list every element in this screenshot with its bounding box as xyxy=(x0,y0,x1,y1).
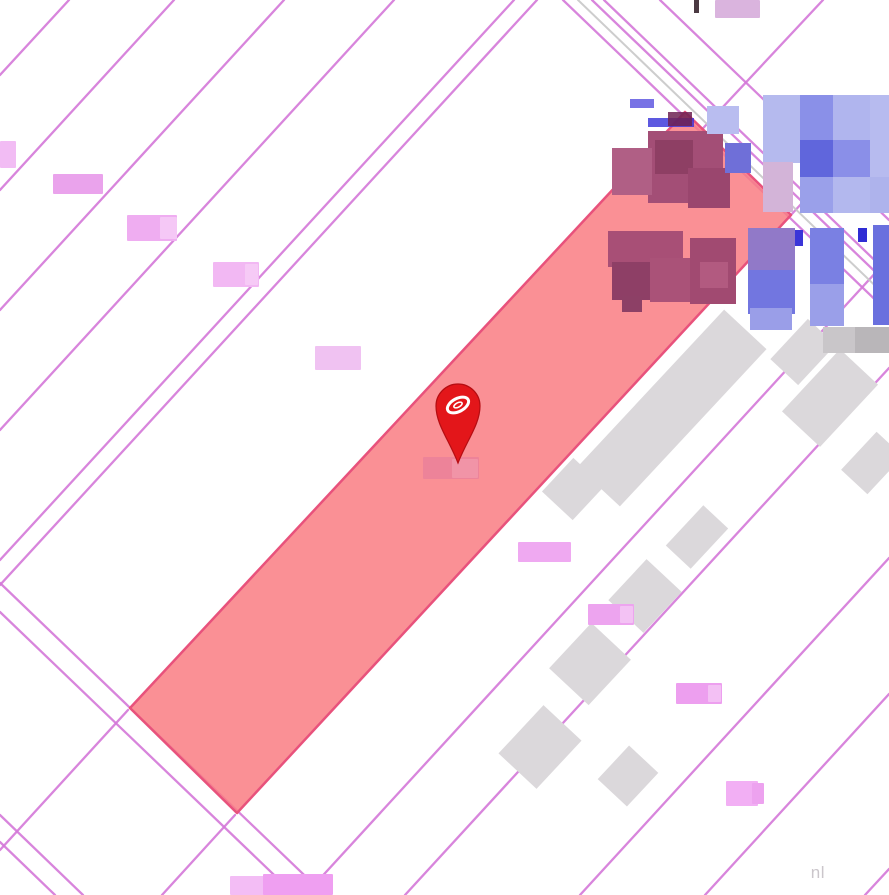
blurred-parcel-label xyxy=(518,542,571,562)
map-attribution: nl xyxy=(811,863,825,883)
pixelated-building-block xyxy=(823,327,857,353)
pixelated-building-block xyxy=(694,0,699,13)
blurred-parcel-label xyxy=(263,874,333,895)
pixelated-building-block xyxy=(810,284,844,326)
parcel-boundary-line xyxy=(0,842,55,895)
map-svg xyxy=(0,0,889,895)
pixelated-building-block xyxy=(833,95,871,141)
building-footprint xyxy=(549,623,631,705)
pixelated-building-block xyxy=(668,112,692,126)
pixelated-building-block xyxy=(795,230,803,246)
pixelated-building-block xyxy=(612,262,656,300)
blurred-parcel-label xyxy=(620,606,633,623)
pixelated-building-block xyxy=(763,162,793,212)
pixelated-building-block xyxy=(800,95,834,141)
pixelated-building-block xyxy=(873,225,889,325)
pixelated-building-block xyxy=(748,228,795,272)
parcel-boundary-line xyxy=(0,0,69,75)
blurred-parcel-label xyxy=(315,346,361,370)
pixelated-building-block xyxy=(870,177,889,213)
pixelated-building-block xyxy=(630,99,654,108)
blurred-parcel-label xyxy=(708,685,721,702)
building-footprint xyxy=(841,432,889,495)
pixelated-building-block xyxy=(800,177,834,213)
pixelated-building-block xyxy=(622,296,642,312)
blurred-parcel-label xyxy=(752,783,764,804)
blurred-parcel-label xyxy=(452,459,478,478)
pixelated-building-block xyxy=(748,270,795,314)
pixelated-building-block xyxy=(750,308,792,330)
blurred-parcel-label xyxy=(0,141,16,168)
pixelated-building-block xyxy=(833,140,871,178)
pixelated-building-block xyxy=(855,327,889,353)
pixelated-building-block xyxy=(612,148,652,195)
pixelated-building-block xyxy=(810,228,844,286)
building-footprint xyxy=(666,505,728,568)
blurred-parcel-label xyxy=(715,0,760,18)
building-footprint xyxy=(598,746,659,807)
pixelated-building-block xyxy=(725,143,751,173)
pixelated-building-block xyxy=(655,140,693,174)
blurred-parcel-label xyxy=(160,217,177,239)
parcel-boundary-line xyxy=(0,710,128,850)
pixelated-building-block xyxy=(700,262,728,288)
blurred-parcel-label xyxy=(53,174,103,194)
pixelated-building-block xyxy=(688,168,730,208)
pixelated-building-block xyxy=(833,177,871,213)
map-canvas[interactable]: nl xyxy=(0,0,889,895)
pixelated-building-block xyxy=(707,106,739,134)
pixelated-building-block xyxy=(800,140,834,178)
parcel-boundary-line xyxy=(0,0,174,190)
blurred-parcel-label xyxy=(245,264,258,285)
pixelated-building-block xyxy=(870,95,889,177)
pixelated-building-block xyxy=(858,228,867,242)
parcel-boundary-line xyxy=(865,869,889,895)
